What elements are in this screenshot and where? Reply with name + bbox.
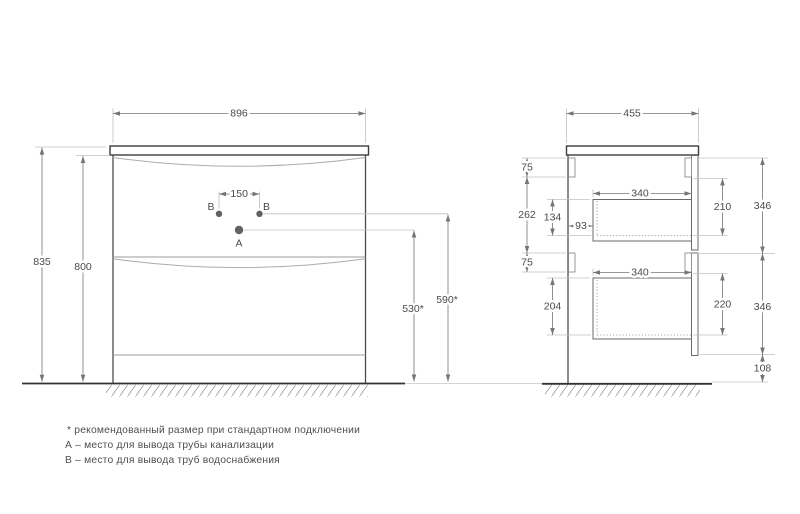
dim-label-530: 530* [402,303,424,315]
front-lower-drawer-curve [113,259,366,268]
drawer-upper-box [593,200,692,242]
floor [22,384,712,398]
dim-label-835: 835 [33,256,51,268]
drawer-lower-box [593,278,692,339]
dim-drawer-lower-length: 340 [593,267,692,279]
dim-gap-mid: 75 [521,253,566,272]
dim-label-455: 455 [623,108,641,120]
front-view: 896 835 800 150 В В А [33,108,458,384]
rail-upper-back [569,158,575,177]
hole-a-point [235,226,243,234]
dim-front-lower-height: 346 [700,254,775,355]
dim-drawer-lower-inner: 204 [544,278,591,335]
floor-hatch-side [545,385,700,397]
rail-lower-back [569,253,575,272]
dim-hole-spacing: 150 [219,188,260,209]
dim-side-depth: 455 [567,108,699,144]
dim-drawer-lower-height: 220 [693,274,731,336]
floor-hatch-front [106,385,368,397]
side-cabinet-body [567,146,699,383]
dim-drawer-upper-height: 210 [693,179,731,236]
dim-back-clearance: 93 [569,220,593,232]
dim-front-width: 896 [113,108,366,144]
front-upper-drawer-curve [113,158,366,167]
dim-floor-clearance: 108 [712,355,771,383]
dim-siphon-height: 530* [402,231,424,382]
dim-label-262: 262 [518,209,536,221]
point-b-right-label: В [263,201,270,213]
front-countertop [110,146,369,155]
dim-label-204: 204 [544,301,562,313]
footnote-point-b: В – место для вывода труб водоснабжения [65,454,280,466]
dim-label-108: 108 [754,363,772,375]
dim-label-800: 800 [74,261,92,273]
dim-label-210: 210 [714,201,732,213]
footnotes: * рекомендованный размер при стандартном… [65,425,360,466]
dim-label-346-top: 346 [754,200,772,212]
footnote-point-a: А – место для вывода трубы канализации [65,439,274,451]
dim-label-75-mid: 75 [521,257,533,269]
technical-drawing: 896 835 800 150 В В А [0,0,800,514]
dim-label-590: 590* [436,294,458,306]
hole-b-left-point [216,211,222,217]
front-cabinet-body [110,146,369,383]
dim-water-height: 590* [436,215,458,382]
dim-label-340-top: 340 [631,188,649,200]
dim-front-upper-height: 346 [693,158,775,254]
outlet-points: В В А [207,201,448,250]
point-a-label: А [235,238,242,250]
footnote-recommended: * рекомендованный размер при стандартном… [67,425,360,436]
dim-label-340-bottom: 340 [631,267,649,279]
dim-label-93: 93 [575,220,587,232]
dim-front-body-height: 800 [74,156,110,382]
dim-gap-top: 75 [521,158,566,177]
hole-b-right-point [256,211,262,217]
side-front-panel-lower [692,253,699,356]
dim-label-220: 220 [714,299,732,311]
dim-label-896: 896 [230,108,248,120]
rail-upper-front [685,158,692,177]
point-b-left-label: В [207,201,214,213]
dim-label-75-top: 75 [521,162,533,174]
dim-front-total-height: 835 [33,147,106,382]
side-view: 455 75 262 75 134 93 [518,108,775,384]
dim-drawer-upper-length: 340 [593,188,692,200]
side-countertop [567,146,699,155]
dim-label-346-bottom: 346 [754,301,772,313]
rail-lower-front [685,253,692,272]
dim-label-150: 150 [230,188,248,200]
dim-label-134: 134 [544,212,562,224]
